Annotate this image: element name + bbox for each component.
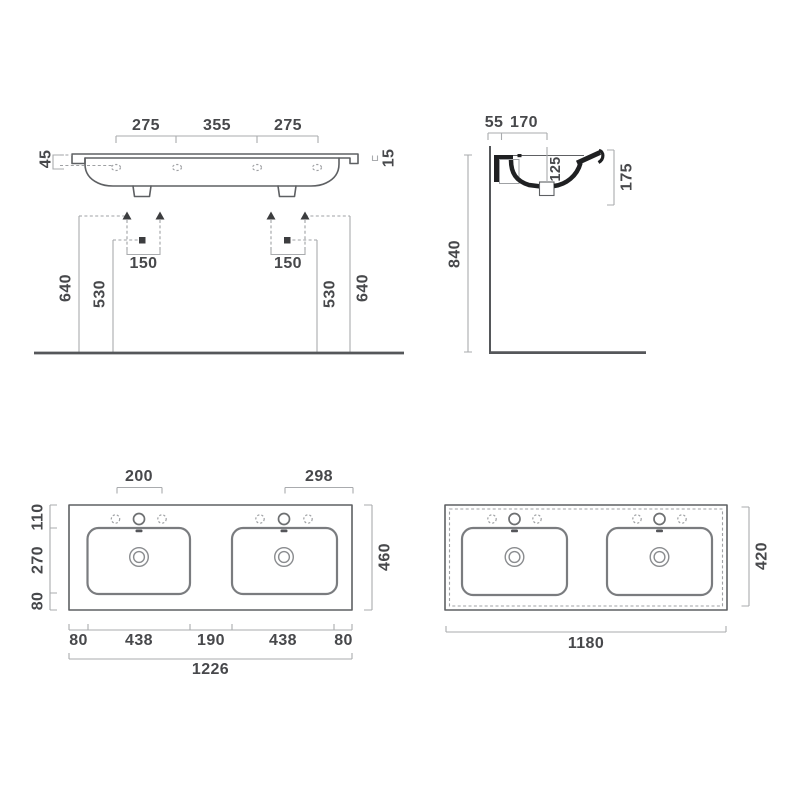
tap-hole-dashed [173, 165, 182, 171]
anchor-spacing-brackets [127, 250, 305, 255]
anchor-triangle-marker [156, 212, 165, 220]
tap-hole-optional [158, 515, 166, 523]
overflow-slot-left [136, 530, 143, 533]
dim-side-front-offset: 170 [510, 114, 538, 131]
dim-plan-overall-width: 1226 [192, 661, 229, 678]
rim-thickness-bracket [373, 156, 378, 161]
tap-hole-section-tick [518, 154, 522, 157]
drain-square-markers [139, 237, 291, 244]
plan-depth-bracket [364, 505, 372, 610]
tap-hole-center [134, 514, 145, 525]
drain-square-marker [284, 237, 291, 244]
technical-drawing-canvas: 275 355 275 45 15 [0, 0, 800, 800]
plan-tap-holes [111, 514, 312, 525]
cutout-basin-left-outline [462, 528, 567, 595]
dim-bowl-depth: 125 [548, 156, 564, 181]
cutout-tap-holes [488, 514, 686, 525]
front-deck-section [577, 153, 600, 164]
plan-bottom-segment-bracket [69, 624, 352, 630]
dim-plan-top-offset: 110 [30, 503, 47, 530]
dim-front-tap-spacing-right: 275 [274, 117, 302, 134]
tap-hole-optional [678, 515, 686, 523]
dim-apron-height: 175 [619, 163, 636, 191]
tap-hole-optional [533, 515, 541, 523]
height-dimension-lines [79, 216, 350, 352]
dim-side-back-offset: 55 [485, 114, 504, 131]
tap-hole-optional [304, 515, 312, 523]
rim-height-bracket [53, 155, 64, 169]
washbasin-dimension-drawing: 275 355 275 45 15 [0, 0, 800, 800]
mounting-height-line [464, 155, 472, 352]
dim-rim-edge-height: 45 [38, 150, 55, 169]
dim-front-tap-spacing-center: 355 [203, 117, 231, 134]
tap-hole-optional [111, 515, 119, 523]
sink-body-profile [85, 158, 339, 186]
rim-height-extension-lines [60, 155, 112, 166]
dim-anchor-spacing-right: 150 [274, 255, 302, 272]
cutout-template-view: 420 1180 [445, 505, 771, 652]
sink-rim-profile [72, 154, 358, 164]
anchor-triangle-marker [301, 212, 310, 220]
dim-inner-height-left: 530 [92, 280, 109, 308]
dim-inner-height-right: 530 [322, 280, 339, 308]
dim-cutout-width: 1180 [568, 635, 604, 652]
tap-hole-center [279, 514, 290, 525]
drain-square-marker [139, 237, 146, 244]
plan-overall-width-bracket [69, 653, 352, 659]
dim-plan-overall-depth: 460 [377, 543, 394, 571]
dim-plan-basin-width-right: 438 [269, 632, 297, 649]
dim-tap-group-width: 200 [125, 468, 153, 485]
mounting-construction-dashes [79, 216, 350, 250]
tap-hole-optional [256, 515, 264, 523]
dim-outer-height-left: 640 [58, 274, 75, 302]
sink-drain-bosses [133, 186, 296, 197]
dim-plan-center-gap: 190 [197, 632, 225, 649]
plan-left-dimension-bracket [50, 505, 57, 610]
overflow-slot-right [281, 530, 288, 533]
tap-hole-center [654, 514, 665, 525]
overflow-slot-right [656, 530, 663, 533]
front-elevation-view: 275 355 275 45 15 [34, 117, 404, 353]
cutout-width-bracket [446, 626, 726, 632]
wall-anchor-triangle-markers [123, 212, 310, 220]
dim-outer-height-right: 640 [355, 274, 372, 302]
dim-rim-thickness: 15 [381, 149, 398, 168]
apron-height-bracket [607, 150, 614, 205]
cutout-depth-bracket [742, 507, 750, 606]
dim-tap-to-edge: 298 [305, 468, 333, 485]
dim-cutout-depth: 420 [754, 542, 771, 570]
tap-hole-dashed [253, 165, 262, 171]
basin-right-outline [232, 528, 337, 594]
plan-view: 200 298 110 270 80 460 80 438 [30, 468, 394, 678]
tap-hole-dashed [112, 165, 121, 171]
cutout-basin-right-outline [607, 528, 712, 595]
plan-top-dimension-brackets [117, 488, 353, 494]
side-section-view: 55 170 840 125 175 [447, 114, 647, 353]
dim-mounting-height: 840 [447, 240, 464, 268]
tap-hole-optional [488, 515, 496, 523]
anchor-triangle-marker [267, 212, 276, 220]
dim-anchor-spacing-left: 150 [130, 255, 158, 272]
basin-left-outline [88, 528, 191, 594]
dim-plan-edge-right: 80 [334, 632, 353, 649]
tap-hole-optional [633, 515, 641, 523]
overflow-slot-left [511, 530, 518, 533]
dim-plan-bottom-offset: 80 [30, 592, 47, 611]
dim-plan-basin-width-left: 438 [125, 632, 153, 649]
side-top-dimension-bracket [488, 133, 547, 140]
dim-plan-basin-depth: 270 [30, 546, 47, 574]
drain-outlet-section [540, 182, 555, 196]
front-top-dimension-bracket [116, 136, 318, 143]
tap-hole-dashed [313, 165, 322, 171]
dim-plan-edge-left: 80 [69, 632, 88, 649]
tap-hole-center [509, 514, 520, 525]
dim-front-tap-spacing-left: 275 [132, 117, 160, 134]
front-tap-holes-hidden [112, 165, 322, 171]
